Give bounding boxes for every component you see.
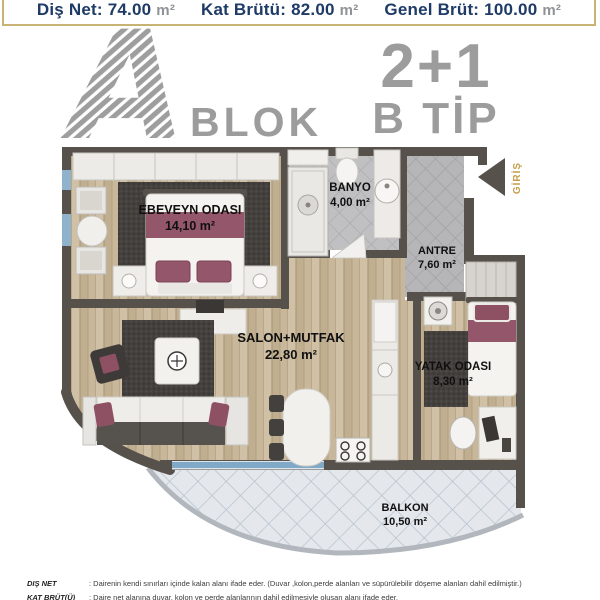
sofa-end-table <box>83 397 96 445</box>
pillow <box>156 261 190 282</box>
room-label-ebeveyn: EBEVEYN ODASI 14,10 m² <box>108 202 272 235</box>
wall-entry-stub <box>478 156 487 165</box>
dining-chair <box>269 395 284 412</box>
single-bed-pillow <box>474 304 510 321</box>
entrance-label: GİRİŞ <box>511 149 525 207</box>
washing-machine-drum <box>435 308 441 314</box>
room-name: ANTRE <box>387 244 487 258</box>
window-left-2 <box>62 214 71 246</box>
tv <box>196 300 224 313</box>
desk-item <box>502 438 511 452</box>
toilet-tank <box>336 148 358 159</box>
pillow <box>197 261 231 282</box>
floorplan-page: Diş Net: 74.00 m² Kat Brütü: 82.00 m² Ge… <box>0 0 600 600</box>
room-label-banyo: BANYO 4,00 m² <box>300 181 400 211</box>
desk-chair <box>450 417 476 449</box>
side-table-top <box>80 251 102 270</box>
room-name: BANYO <box>300 181 400 196</box>
wall-tv <box>62 299 289 308</box>
sofa-back <box>97 397 225 424</box>
wardrobe <box>73 153 279 180</box>
hall-floor <box>403 151 464 297</box>
room-area: 22,80 m² <box>213 347 369 364</box>
room-area: 8,30 m² <box>391 375 515 390</box>
footnote-kat-brut: KAT BRÜT(Ü) : Daire net alanına duvar, k… <box>27 593 593 600</box>
kitchen-sink <box>378 363 392 377</box>
side-table-top <box>80 191 102 210</box>
room-label-antre: ANTRE 7,60 m² <box>387 244 487 273</box>
room-label-balkon: BALKON 10,50 m² <box>343 501 467 530</box>
room-label-yatak: YATAK ODASI 8,30 m² <box>391 360 515 390</box>
room-label-salon: SALON+MUTFAK 22,80 m² <box>213 330 369 364</box>
footnote-dis-net: DIŞ NET : Dairenin kendi sınırları içind… <box>27 579 593 588</box>
room-area: 4,00 m² <box>300 196 400 211</box>
single-bed-runner <box>468 320 516 342</box>
room-name: YATAK ODASI <box>391 360 515 375</box>
footnotes: DIŞ NET : Dairenin kendi sınırları içind… <box>27 579 593 600</box>
footnote-definition: : Dairenin kendi sınırları içinde kalan … <box>89 579 593 588</box>
footnote-definition: : Daire net alanına duvar, kolon ve perd… <box>89 593 593 600</box>
fridge <box>374 302 396 342</box>
dining-chair <box>269 419 284 436</box>
footnote-term: KAT BRÜT(Ü) <box>27 593 89 600</box>
dining-table <box>283 389 330 466</box>
bed-cushion <box>158 283 232 294</box>
room-name: BALKON <box>343 501 467 515</box>
footnote-term: DIŞ NET <box>27 579 89 588</box>
window-left-1 <box>62 170 71 190</box>
room-area: 10,50 m² <box>343 515 467 529</box>
sofa-end-table <box>226 397 248 445</box>
sofa-seat <box>97 422 225 445</box>
round-table <box>77 216 107 246</box>
nightstand-lamp <box>122 274 136 288</box>
room-area: 14,10 m² <box>108 218 272 234</box>
wall-right-lower <box>516 255 525 508</box>
dining-chair <box>269 443 284 460</box>
room-area: 7,60 m² <box>387 258 487 272</box>
room-name: SALON+MUTFAK <box>213 330 369 347</box>
room-name: EBEVEYN ODASI <box>108 202 272 218</box>
floorplan-drawing <box>0 0 600 600</box>
balcony-door-frame <box>172 468 324 470</box>
nightstand-lamp <box>253 274 267 288</box>
bath-shelf <box>288 150 328 165</box>
